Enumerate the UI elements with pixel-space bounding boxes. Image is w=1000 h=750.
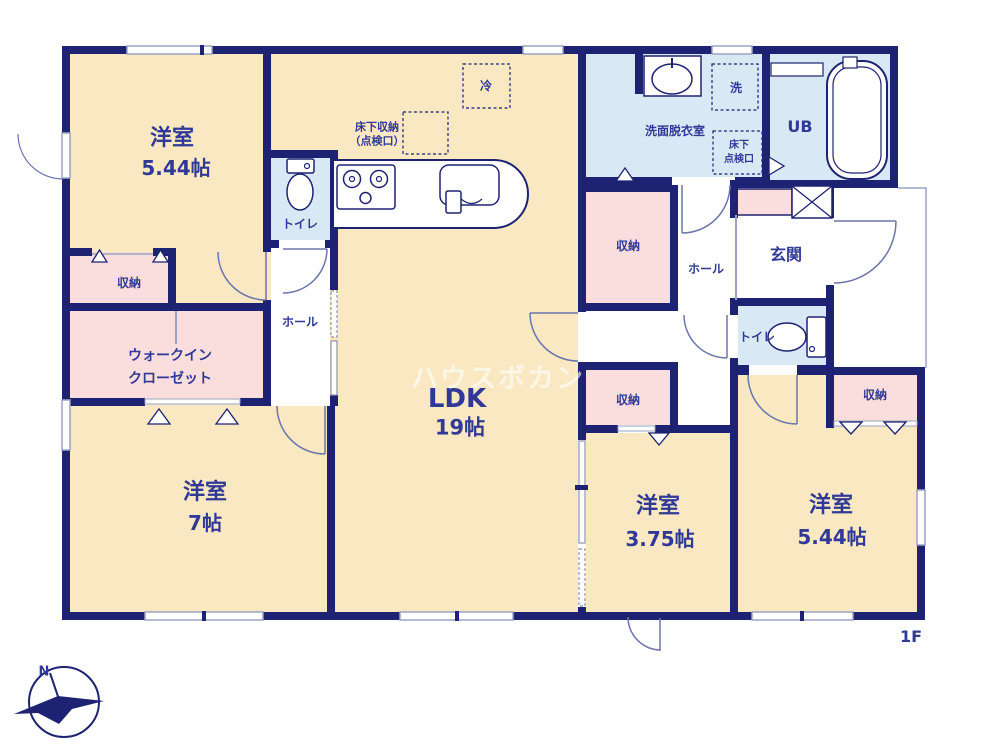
underfloor-hatch-label-line2: 点検口 — [724, 155, 754, 165]
compass-icon — [14, 667, 104, 737]
stove-icon — [337, 165, 395, 209]
floor-number-label: 1F — [900, 629, 922, 645]
bedroom-bottom-middle-label: 洋室 — [636, 496, 680, 518]
storage-mid-upper-label: 収納 — [616, 240, 640, 252]
ldk-size: 19帖 — [435, 418, 485, 439]
underfloor-storage-label-line1: 床下収納 — [355, 122, 399, 133]
storage-mid-lower-label: 収納 — [616, 394, 640, 406]
toilet-left-icon — [287, 159, 314, 210]
compass-north-label: N — [39, 666, 50, 679]
refrigerator-space-label: 冷 — [480, 80, 492, 92]
bedroom-top-left-size: 5.44帖 — [141, 158, 210, 178]
washroom-label: 洗面脱衣室 — [645, 125, 705, 137]
bedroom-bottom-left-label: 洋室 — [183, 482, 227, 504]
entrance-label: 玄関 — [770, 247, 802, 263]
hall-right-label: ホール — [688, 263, 724, 275]
floor-plan: 洋室 5.44帖 トイレ 収納 ホール ウォークイン クローゼット 洋室 7帖 … — [0, 0, 1000, 750]
bedroom-bottom-middle-size: 3.75帖 — [625, 529, 694, 549]
pipe-space-box — [792, 186, 832, 218]
walk-in-closet-label-line2: クローゼット — [128, 372, 212, 386]
storage-top-left-label: 収納 — [117, 277, 141, 289]
toilet-left-label: トイレ — [282, 218, 318, 230]
hall-left-label: ホール — [282, 316, 318, 328]
bedroom-bottom-right-size: 5.44帖 — [797, 527, 866, 547]
underfloor-hatch-label-line1: 床下 — [729, 141, 749, 151]
bedroom-bottom-right-label: 洋室 — [809, 495, 853, 517]
washbasin-icon — [644, 56, 701, 96]
unit-bath-label: UB — [787, 119, 812, 135]
washer-space-label: 洗 — [730, 82, 742, 94]
bedroom-top-left-label: 洋室 — [150, 128, 194, 150]
kitchen-counter — [333, 160, 528, 228]
walk-in-closet-label-line1: ウォークイン — [128, 349, 212, 363]
underfloor-storage-label-line2: （点検口） — [350, 136, 405, 147]
bedroom-bottom-left-size: 7帖 — [188, 513, 222, 533]
storage-bottom-right-label: 収納 — [863, 389, 887, 401]
toilet-right-label: トイレ — [739, 331, 775, 343]
watermark-text: ハウスボカン — [411, 357, 585, 396]
